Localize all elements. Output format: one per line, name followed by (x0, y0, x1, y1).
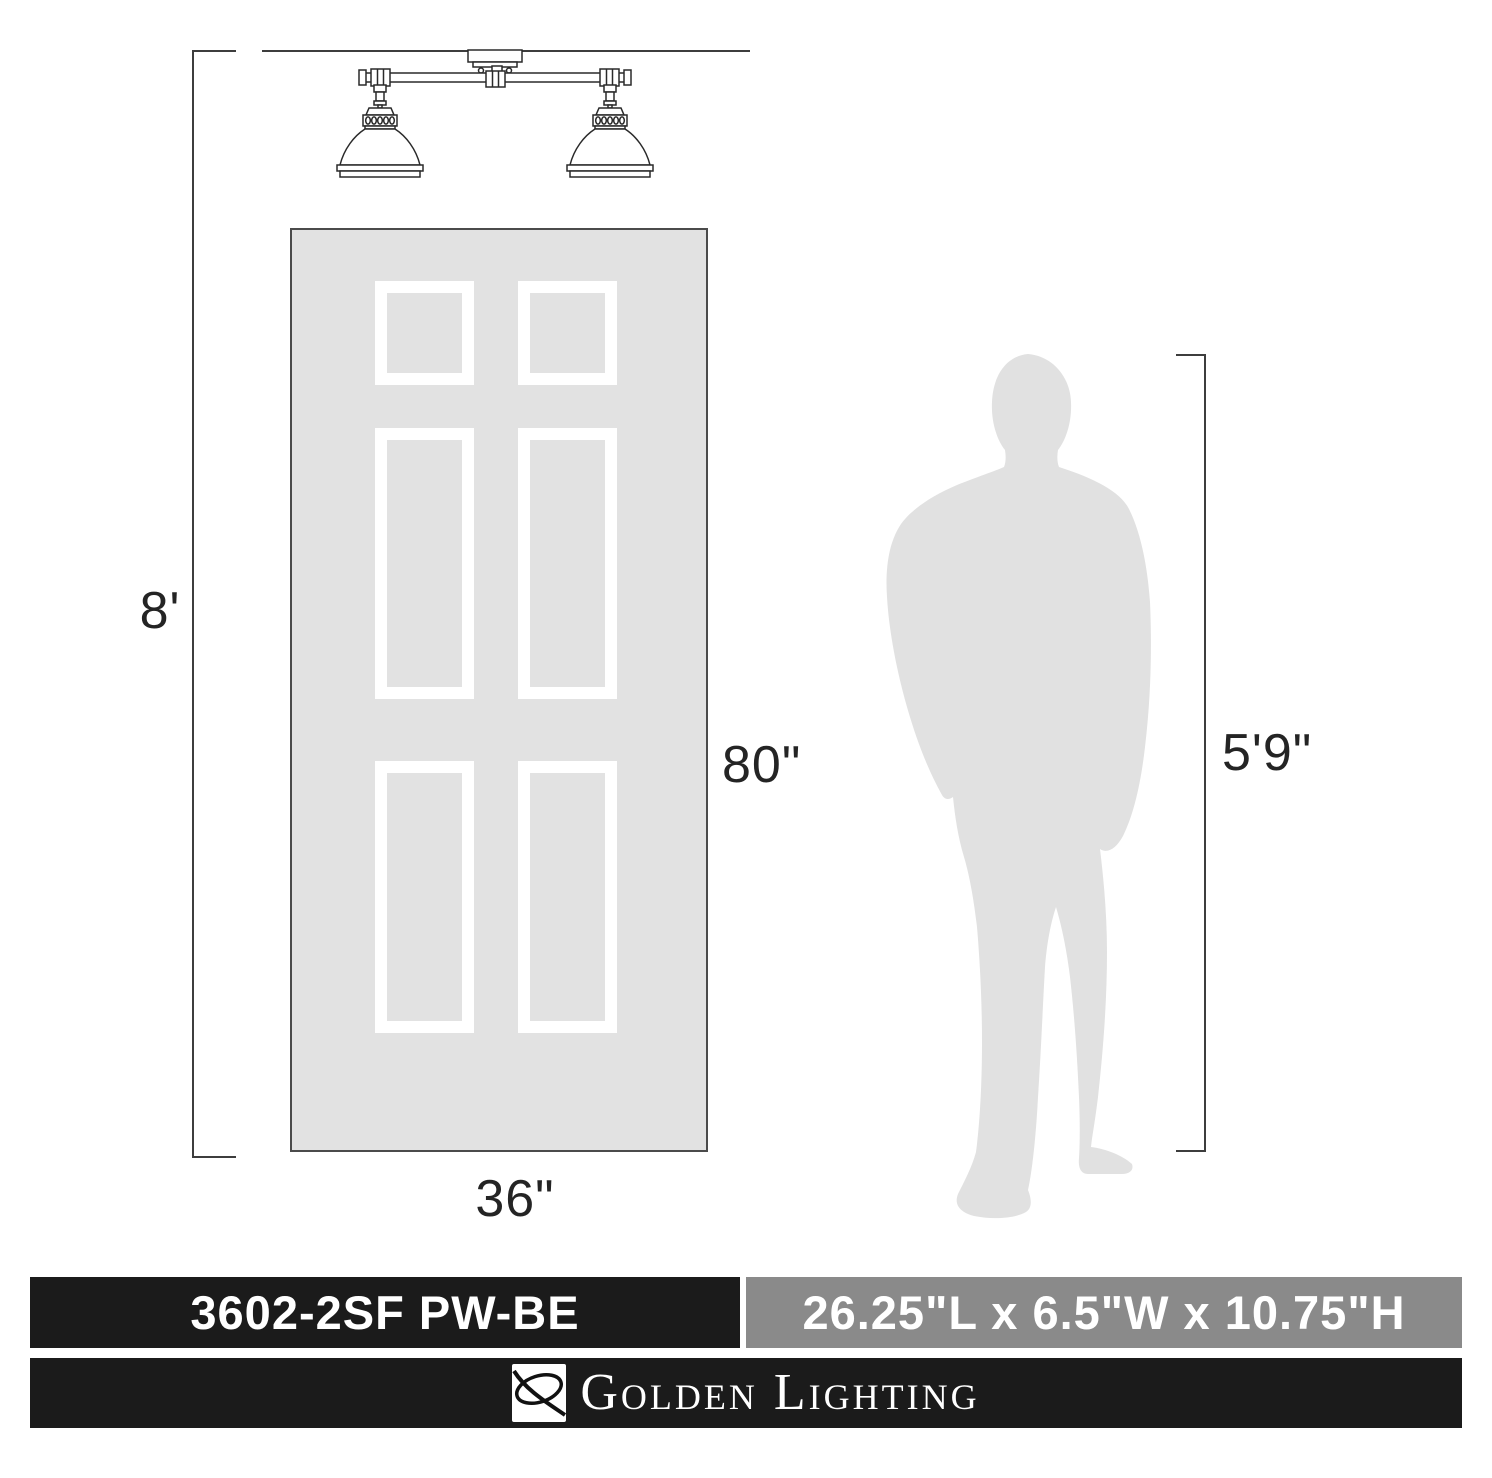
golden-lighting-logo-icon (512, 1364, 566, 1422)
door-panel-bottom-left (375, 761, 474, 1033)
person-height-bracket (1204, 354, 1206, 1152)
ceiling-height-label: 8' (118, 582, 202, 640)
door-silhouette (290, 228, 708, 1152)
spec-bar: 3602-2SF PW-BE 26.25"L x 6.5"W x 10.75"H (30, 1277, 1462, 1348)
brand-wordmark: Golden Lighting (580, 1358, 979, 1428)
dimensions-text: 26.25"L x 6.5"W x 10.75"H (802, 1285, 1405, 1340)
person-height-label: 5'9" (1222, 724, 1312, 782)
person-height-bracket-bottom-tick (1176, 1150, 1206, 1152)
door-height-label: 80" (722, 736, 801, 794)
brand-bar: Golden Lighting (30, 1358, 1462, 1428)
door-panel-middle-right (518, 428, 617, 699)
dimensions-bar: 26.25"L x 6.5"W x 10.75"H (746, 1277, 1462, 1348)
door-panel-top-right (518, 281, 617, 385)
ceiling-height-bracket-top-tick (192, 50, 236, 52)
light-fixture-drawing (250, 40, 760, 185)
model-number: 3602-2SF PW-BE (190, 1285, 579, 1340)
door-panel-bottom-right (518, 761, 617, 1033)
door-width-label: 36" (453, 1170, 577, 1228)
model-number-bar: 3602-2SF PW-BE (30, 1277, 740, 1348)
ceiling-height-bracket-bottom-tick (192, 1156, 236, 1158)
size-comparison-diagram: 8' 80" 36" 5'9" 3602-2SF PW-BE 26.25"L x… (0, 0, 1492, 1478)
door-panel-middle-left (375, 428, 474, 699)
person-silhouette (860, 352, 1160, 1222)
person-height-bracket-top-tick (1176, 354, 1206, 356)
door-panel-top-left (375, 281, 474, 385)
